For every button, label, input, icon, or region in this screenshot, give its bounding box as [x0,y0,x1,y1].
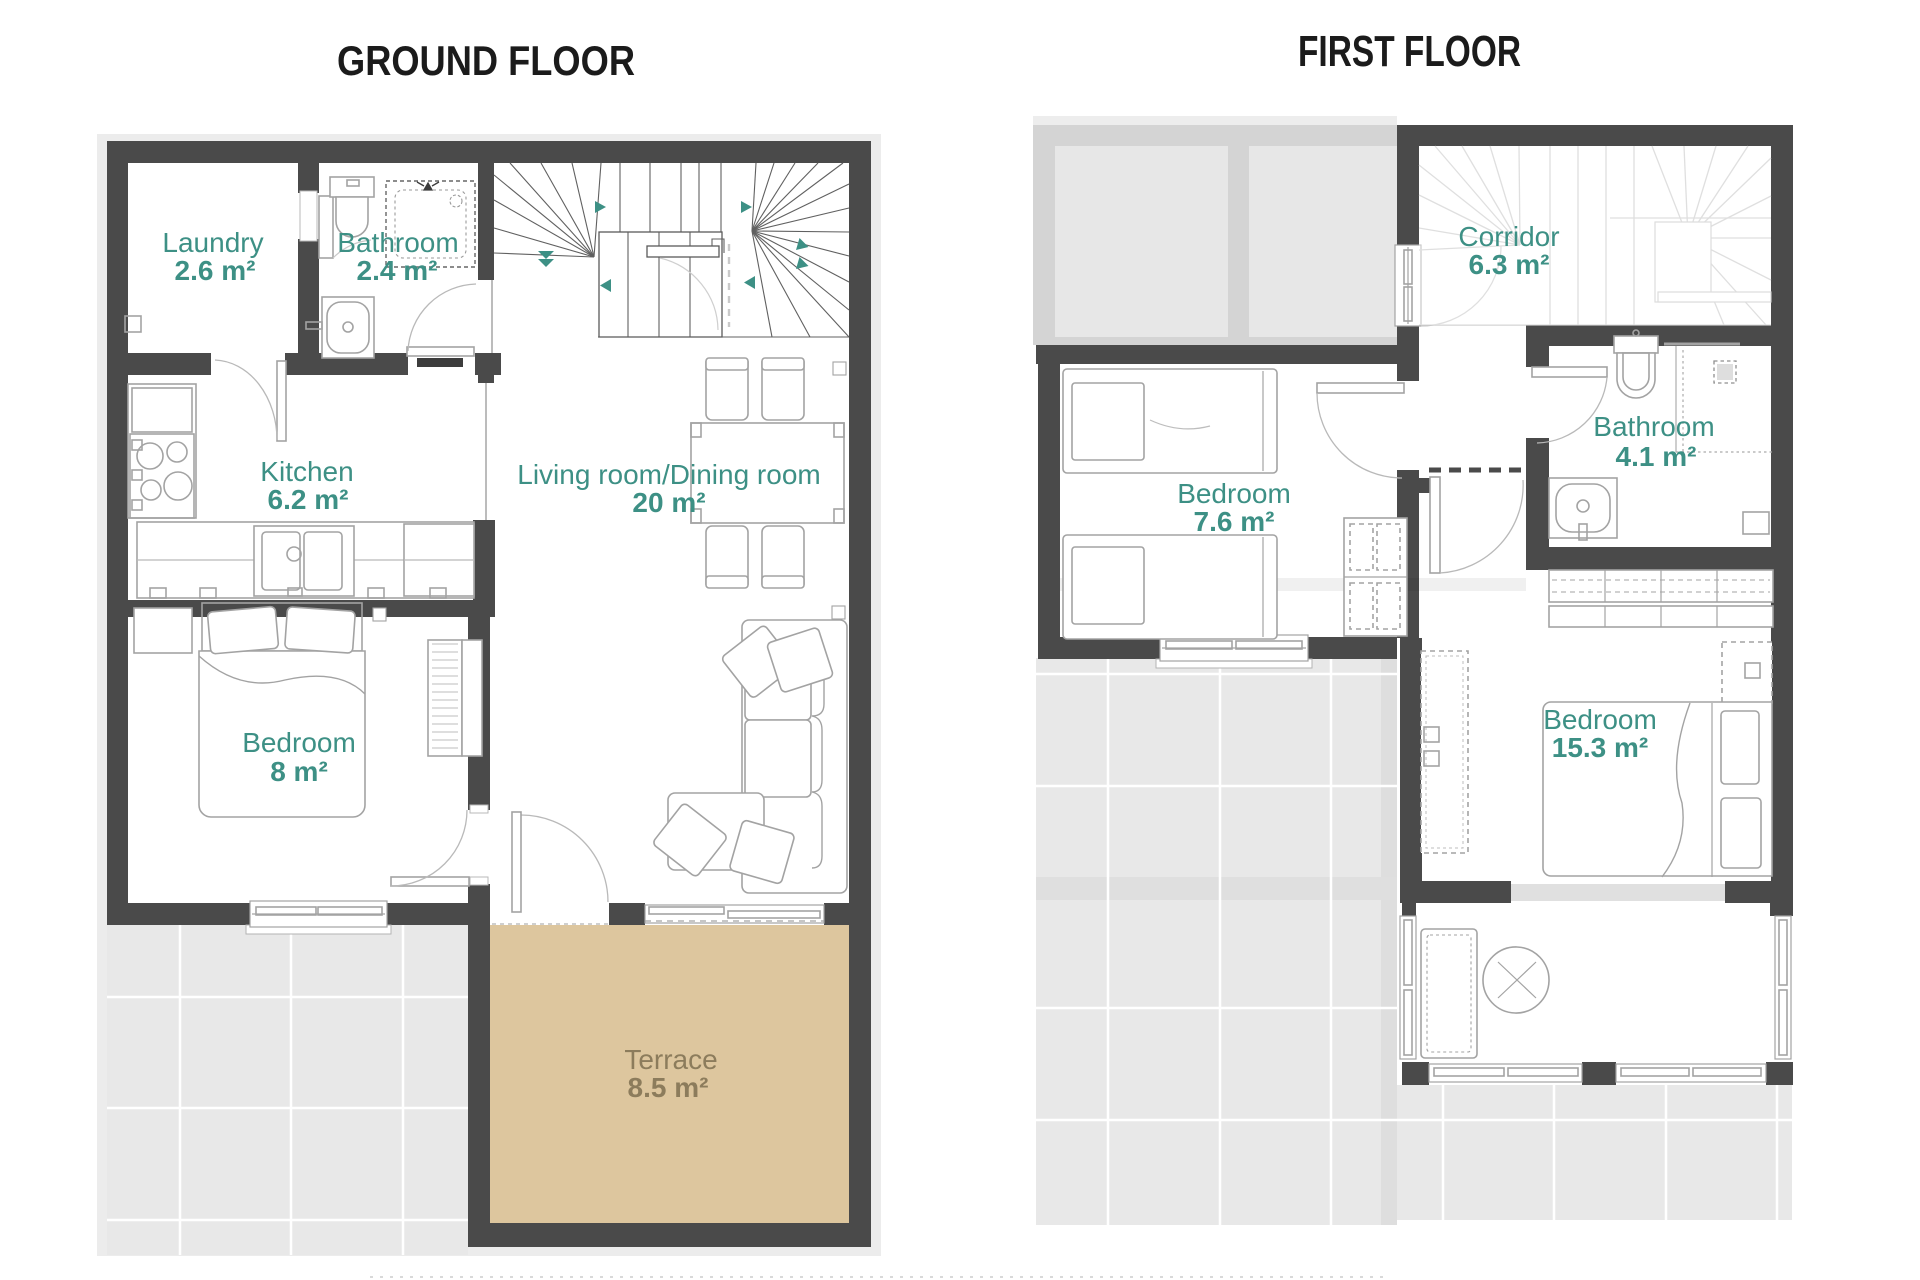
svg-text:Bathroom: Bathroom [337,227,458,258]
svg-text:20 m²: 20 m² [632,487,705,518]
svg-text:Bedroom: Bedroom [1177,478,1291,509]
svg-text:Kitchen: Kitchen [260,456,353,487]
svg-text:Living room/Dining room: Living room/Dining room [517,459,820,490]
svg-text:15.3 m²: 15.3 m² [1552,732,1649,763]
svg-text:8 m²: 8 m² [270,756,328,787]
svg-text:2.6 m²: 2.6 m² [175,255,256,286]
svg-text:Bedroom: Bedroom [1543,704,1657,735]
svg-text:Laundry: Laundry [162,227,263,258]
svg-text:6.2 m²: 6.2 m² [268,484,349,515]
svg-text:Bedroom: Bedroom [242,727,356,758]
svg-text:2.4 m²: 2.4 m² [357,255,438,286]
svg-text:Corridor: Corridor [1458,221,1559,252]
svg-text:6.3 m²: 6.3 m² [1469,249,1550,280]
svg-text:Terrace: Terrace [624,1044,717,1075]
svg-text:7.6 m²: 7.6 m² [1194,506,1275,537]
svg-text:Bathroom: Bathroom [1593,411,1714,442]
svg-text:GROUND FLOOR: GROUND FLOOR [337,37,635,84]
svg-text:4.1 m²: 4.1 m² [1616,441,1697,472]
svg-text:FIRST FLOOR: FIRST FLOOR [1298,27,1521,76]
svg-text:8.5 m²: 8.5 m² [628,1072,709,1103]
